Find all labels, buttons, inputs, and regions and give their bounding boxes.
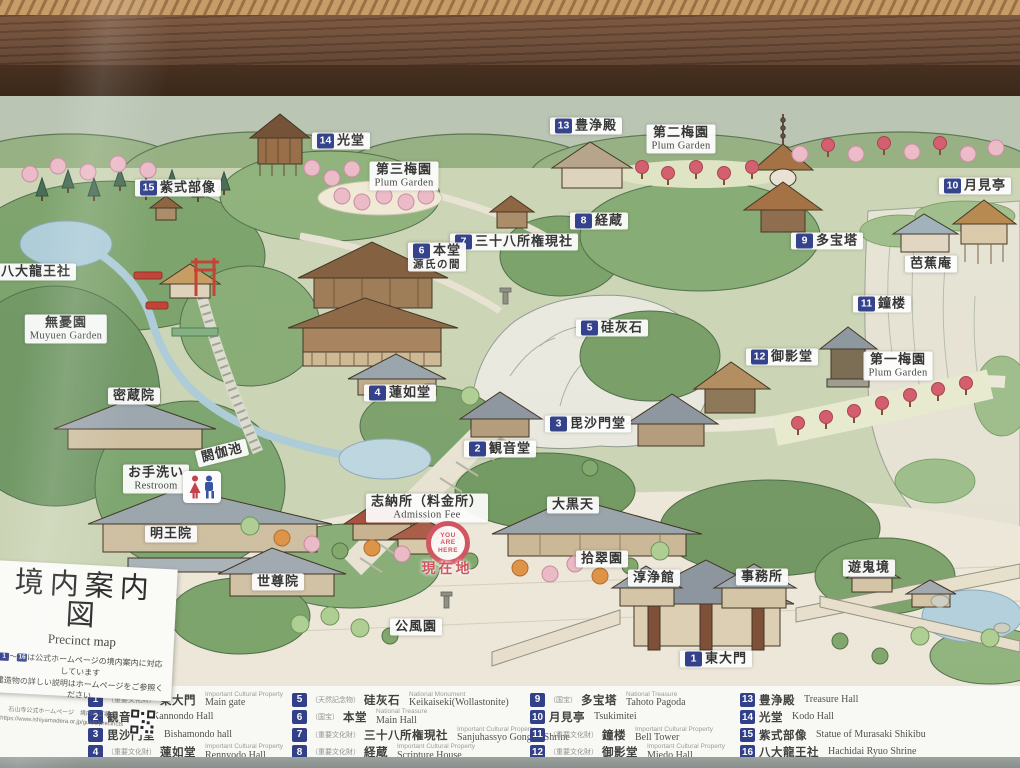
map-label-subtext: 源氏の間 — [413, 258, 461, 270]
map-title-ja: 境内案内図 — [0, 566, 169, 636]
map-label-text: 蓮如堂 — [389, 386, 431, 401]
map-label-text: 紫式部像 — [160, 181, 216, 196]
map-label-text: 明王院 — [150, 527, 192, 542]
map-label-todaimon: 1東大門 — [680, 651, 752, 668]
map-label-jimusho: 事務所 — [736, 569, 788, 586]
map-label-text: 鐘楼 — [878, 297, 906, 312]
map-label-text: 遊鬼境 — [848, 561, 890, 576]
map-label-text: 志納所（料金所） — [371, 495, 483, 510]
map-label-mitsuzoin: 密蔵院 — [108, 388, 160, 405]
map-label-text: 密蔵院 — [113, 389, 155, 404]
map-label-bashoan: 芭蕉庵 — [905, 256, 957, 273]
map-label-murasaki-statue: 15紫式部像 — [135, 180, 221, 197]
map-label-tahoto: 9多宝塔 — [791, 233, 863, 250]
restroom-icon — [183, 471, 221, 503]
map-label-text: 第二梅園 — [653, 126, 709, 141]
map-label-otearai: お手洗いRestroom — [123, 465, 189, 494]
qr-code — [129, 709, 156, 736]
map-label-text: お手洗い — [128, 466, 184, 481]
title-panel: 境内案内図 Precinct map 1～16は公式ホームページの境内案内に対応… — [0, 560, 178, 701]
map-label-english: Admission Fee — [371, 509, 483, 521]
map-label-text: 淳浄館 — [633, 571, 675, 586]
map-label-kyozo: 8経蔵 — [570, 213, 628, 230]
map-label-myooin: 明王院 — [145, 526, 197, 543]
map-label-shinosho: 志納所（料金所）Admission Fee — [366, 494, 488, 523]
map-label-text: 第三梅園 — [376, 163, 432, 178]
map-label-kofuen: 公風園 — [390, 619, 442, 636]
map-label-text: 硅灰石 — [601, 321, 643, 336]
map-label-kodo: 14光堂 — [312, 133, 370, 150]
map-number-badge: 10 — [944, 179, 961, 194]
map-label-plum-garden-1: 第一梅園Plum Garden — [864, 352, 933, 381]
you-are-here-text: YOU — [440, 532, 456, 539]
map-label-yukikyo: 遊鬼境 — [843, 560, 895, 577]
map-label-english: Muyuen Garden — [30, 330, 102, 342]
map-label-hachidai-ryuo: 16八大龍王社 — [0, 264, 76, 281]
map-number-badge: 11 — [858, 297, 875, 312]
map-label-text: 八大龍王社 — [1, 265, 71, 280]
map-label-text: 東大門 — [705, 652, 747, 667]
map-number-badge: 2 — [469, 442, 486, 457]
map-label-text: 観音堂 — [489, 442, 531, 457]
map-label-akaike: 閼伽池 — [195, 438, 250, 467]
map-label-english: Plum Garden — [652, 140, 711, 152]
map-label-text: 無憂園 — [45, 316, 87, 331]
map-label-plum-garden-3: 第三梅園Plum Garden — [370, 162, 439, 191]
map-label-text: 芭蕉庵 — [910, 257, 952, 272]
you-are-here-label: 現在地 — [422, 558, 473, 578]
map-label-english: Restroom — [128, 480, 184, 492]
map-label-text: 事務所 — [741, 570, 783, 585]
map-label-text: 御影堂 — [771, 350, 813, 365]
map-label-muyuen-garden: 無憂園Muyuen Garden — [25, 315, 107, 344]
map-label-text: 公風園 — [395, 620, 437, 635]
map-label-text: 多宝塔 — [816, 234, 858, 249]
map-label-shusuien: 拾翠園 — [576, 551, 628, 568]
map-label-plum-garden-2: 第二梅園Plum Garden — [647, 125, 716, 154]
map-label-miedo: 12御影堂 — [746, 349, 818, 366]
map-label-bishamondo: 3毘沙門堂 — [545, 416, 631, 433]
map-label-text: 第一梅園 — [870, 353, 926, 368]
map-label-english: Plum Garden — [869, 367, 928, 379]
map-label-text: 豊浄殿 — [575, 119, 617, 134]
map-number-badge: 14 — [317, 134, 334, 149]
map-number-badge: 9 — [796, 234, 813, 249]
map-label-english: Plum Garden — [375, 177, 434, 189]
map-label-text: 世尊院 — [257, 575, 299, 590]
map-label-text: 光堂 — [337, 134, 365, 149]
map-label-junjokan: 淳浄館 — [628, 570, 680, 587]
map-label-text: 経蔵 — [595, 214, 623, 229]
map-label-text: 本堂 — [433, 244, 461, 259]
map-number-badge: 5 — [581, 321, 598, 336]
map-number-badge: 3 — [550, 417, 567, 432]
map-label-kannondo: 2観音堂 — [464, 441, 536, 458]
map-number-badge: 1 — [685, 652, 702, 667]
map-label-text: 三十八所権現社 — [475, 235, 573, 250]
map-label-text: 閼伽池 — [200, 441, 244, 466]
map-label-sanjuhassho: 7三十八所権現社 — [450, 234, 578, 251]
map-number-badge: 13 — [555, 119, 572, 134]
map-label-hojoden: 13豊浄殿 — [550, 118, 622, 135]
map-label-daikokuten: 大黒天 — [547, 497, 599, 514]
map-label-rennyodo: 4蓮如堂 — [364, 385, 436, 402]
map-label-text: 毘沙門堂 — [570, 417, 626, 432]
map-number-badge: 12 — [751, 350, 768, 365]
map-number-badge: 15 — [140, 181, 157, 196]
map-label-shoro: 11鐘楼 — [853, 296, 911, 313]
map-label-sesonin: 世尊院 — [252, 574, 304, 591]
map-label-hondo: 6本堂源氏の間 — [408, 242, 466, 271]
map-label-text: 大黒天 — [552, 498, 594, 513]
map-number-badge: 8 — [575, 214, 592, 229]
map-label-tsukimitei: 10月見亭 — [939, 178, 1011, 195]
map-number-badge: 6 — [413, 243, 430, 258]
homepage-reference: 石山寺公式ホームページ 境内のご案内 https://www.ishiyamad… — [0, 705, 124, 731]
map-label-keikaiseki: 5硅灰石 — [576, 320, 648, 337]
map-number-badge: 4 — [369, 386, 386, 401]
map-label-text: 月見亭 — [964, 179, 1006, 194]
map-label-text: 拾翠園 — [581, 552, 623, 567]
